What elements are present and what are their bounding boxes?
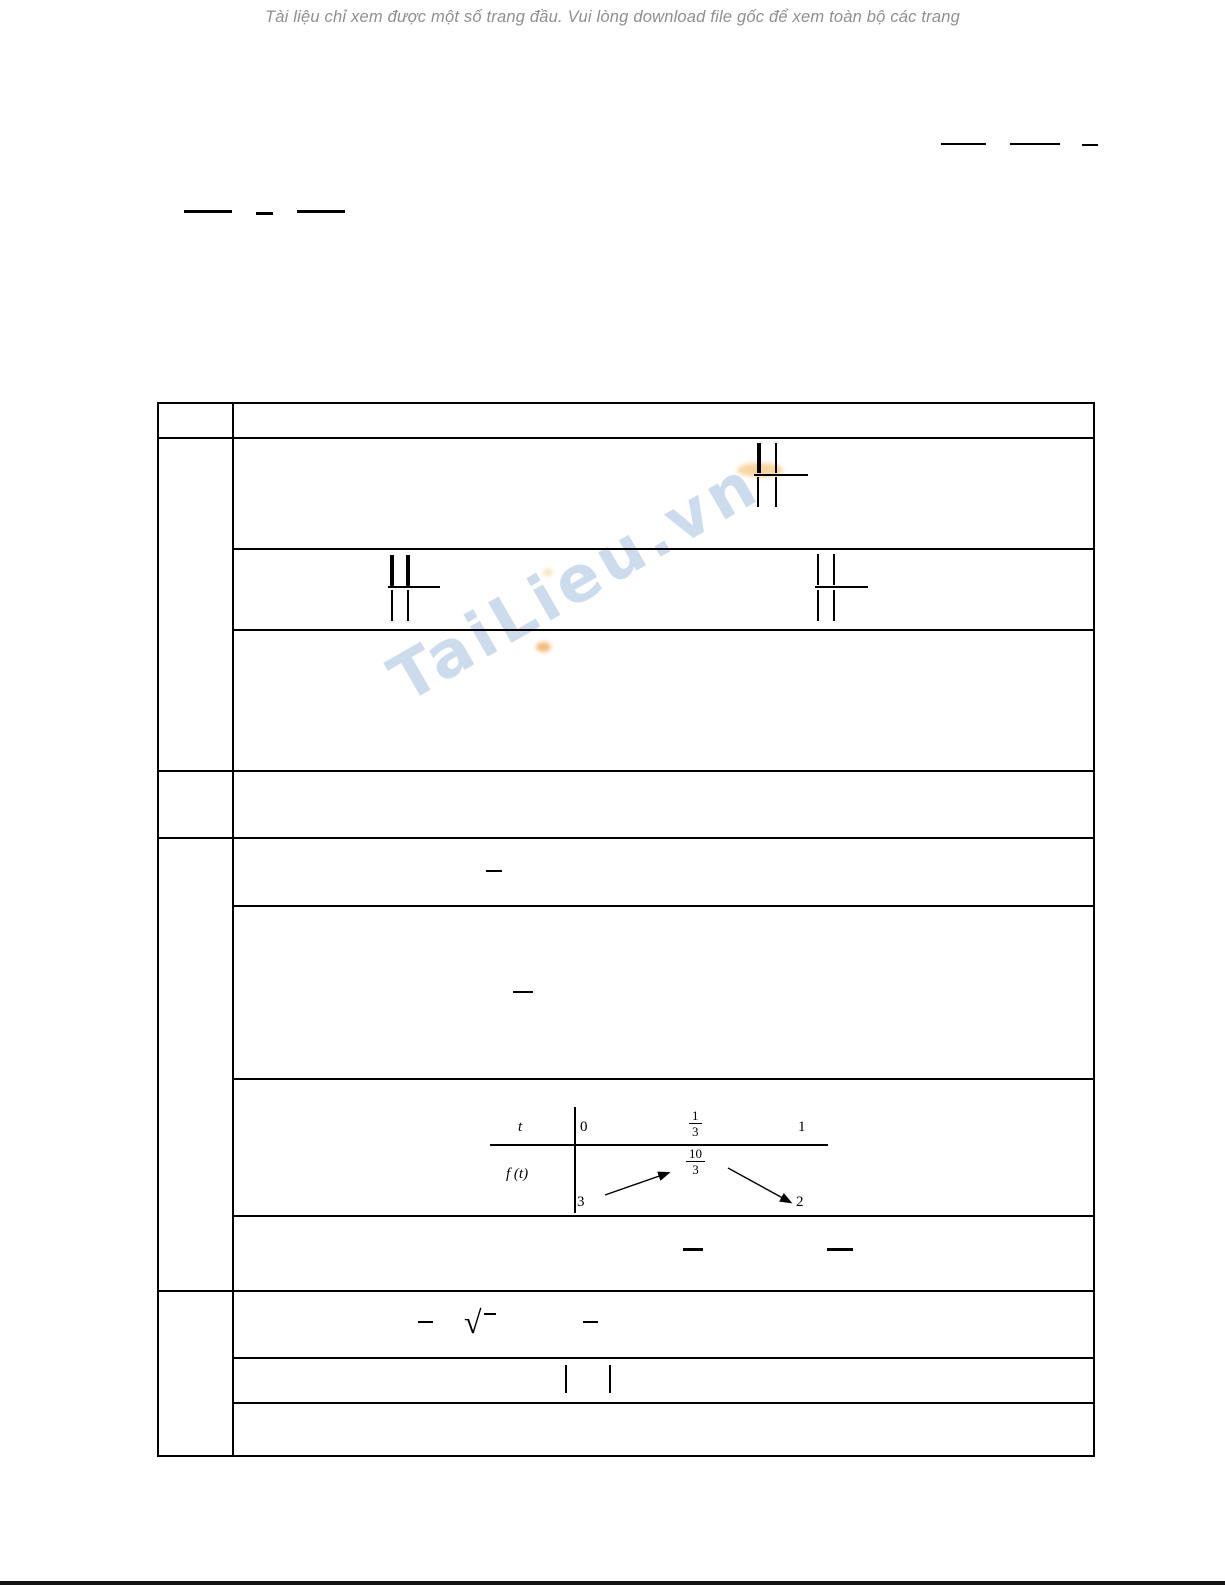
fraction-bar-mark — [418, 1321, 433, 1323]
fraction-bar-mark — [1010, 143, 1060, 145]
fraction-bar-mark — [941, 143, 986, 145]
table-row-divider — [157, 770, 1095, 772]
table-subrow-divider — [232, 905, 1095, 907]
highlight-blob — [536, 642, 551, 652]
abs-bar-mark — [391, 590, 393, 621]
fraction-bar-mark — [513, 991, 533, 993]
fraction-bar-mark — [754, 474, 808, 476]
abs-bar-mark — [757, 443, 761, 473]
table-subrow-divider — [232, 1357, 1095, 1359]
abs-bar-mark — [833, 554, 835, 585]
fraction-bar-mark — [815, 586, 868, 588]
table-border-top — [157, 402, 1095, 404]
abs-bar-mark — [775, 443, 777, 473]
increase-arrow — [605, 1173, 668, 1195]
abs-bar-mark — [390, 555, 394, 586]
abs-bar-mark — [817, 554, 819, 585]
fraction-bar-mark — [297, 210, 345, 213]
table-border-left — [157, 402, 159, 1457]
table-border-right — [1093, 402, 1095, 1457]
abs-bar-mark — [407, 590, 409, 621]
table-subrow-divider — [232, 1078, 1095, 1080]
fraction-bar-mark — [184, 210, 232, 213]
abs-bar-mark — [565, 1365, 567, 1393]
abs-bar-mark — [817, 590, 819, 621]
table-subrow-divider — [232, 1215, 1095, 1217]
fraction-bar-mark — [388, 586, 440, 588]
abs-bar-mark — [757, 477, 759, 507]
site-watermark: TaiLieu.vn — [377, 447, 772, 718]
document-page: Tài liệu chỉ xem được một số trang đầu. … — [0, 0, 1225, 1585]
fraction-bar-mark — [683, 1248, 703, 1251]
abs-bar-mark — [609, 1365, 611, 1393]
bottom-edge-bar — [0, 1581, 1225, 1585]
table-border-bottom — [157, 1455, 1095, 1457]
abs-bar-mark — [406, 555, 410, 586]
table-subrow-divider — [232, 629, 1095, 631]
highlight-blob — [543, 569, 553, 576]
preview-notice: Tài liệu chỉ xem được một số trang đầu. … — [0, 8, 1225, 27]
fraction-bar-mark — [583, 1321, 598, 1323]
fraction-bar-mark — [484, 1313, 496, 1315]
table-subrow-divider — [232, 548, 1095, 550]
table-row-divider — [157, 837, 1095, 839]
table-column-divider — [232, 402, 234, 1457]
variation-table: t 0 1 3 1 10 3 f (t) 3 2 — [480, 1100, 840, 1215]
radical-icon: √ — [464, 1306, 482, 1338]
abs-bar-mark — [775, 477, 777, 507]
decrease-arrow — [728, 1168, 790, 1202]
fraction-bar-mark — [486, 870, 502, 872]
abs-bar-mark — [833, 590, 835, 621]
table-row-divider — [157, 1290, 1095, 1292]
table-row-divider — [157, 437, 1095, 439]
table-subrow-divider — [232, 1402, 1095, 1404]
variation-arrows — [480, 1100, 840, 1215]
fraction-bar-mark — [827, 1248, 853, 1251]
fraction-bar-mark — [256, 212, 273, 215]
fraction-bar-mark — [1082, 144, 1098, 146]
